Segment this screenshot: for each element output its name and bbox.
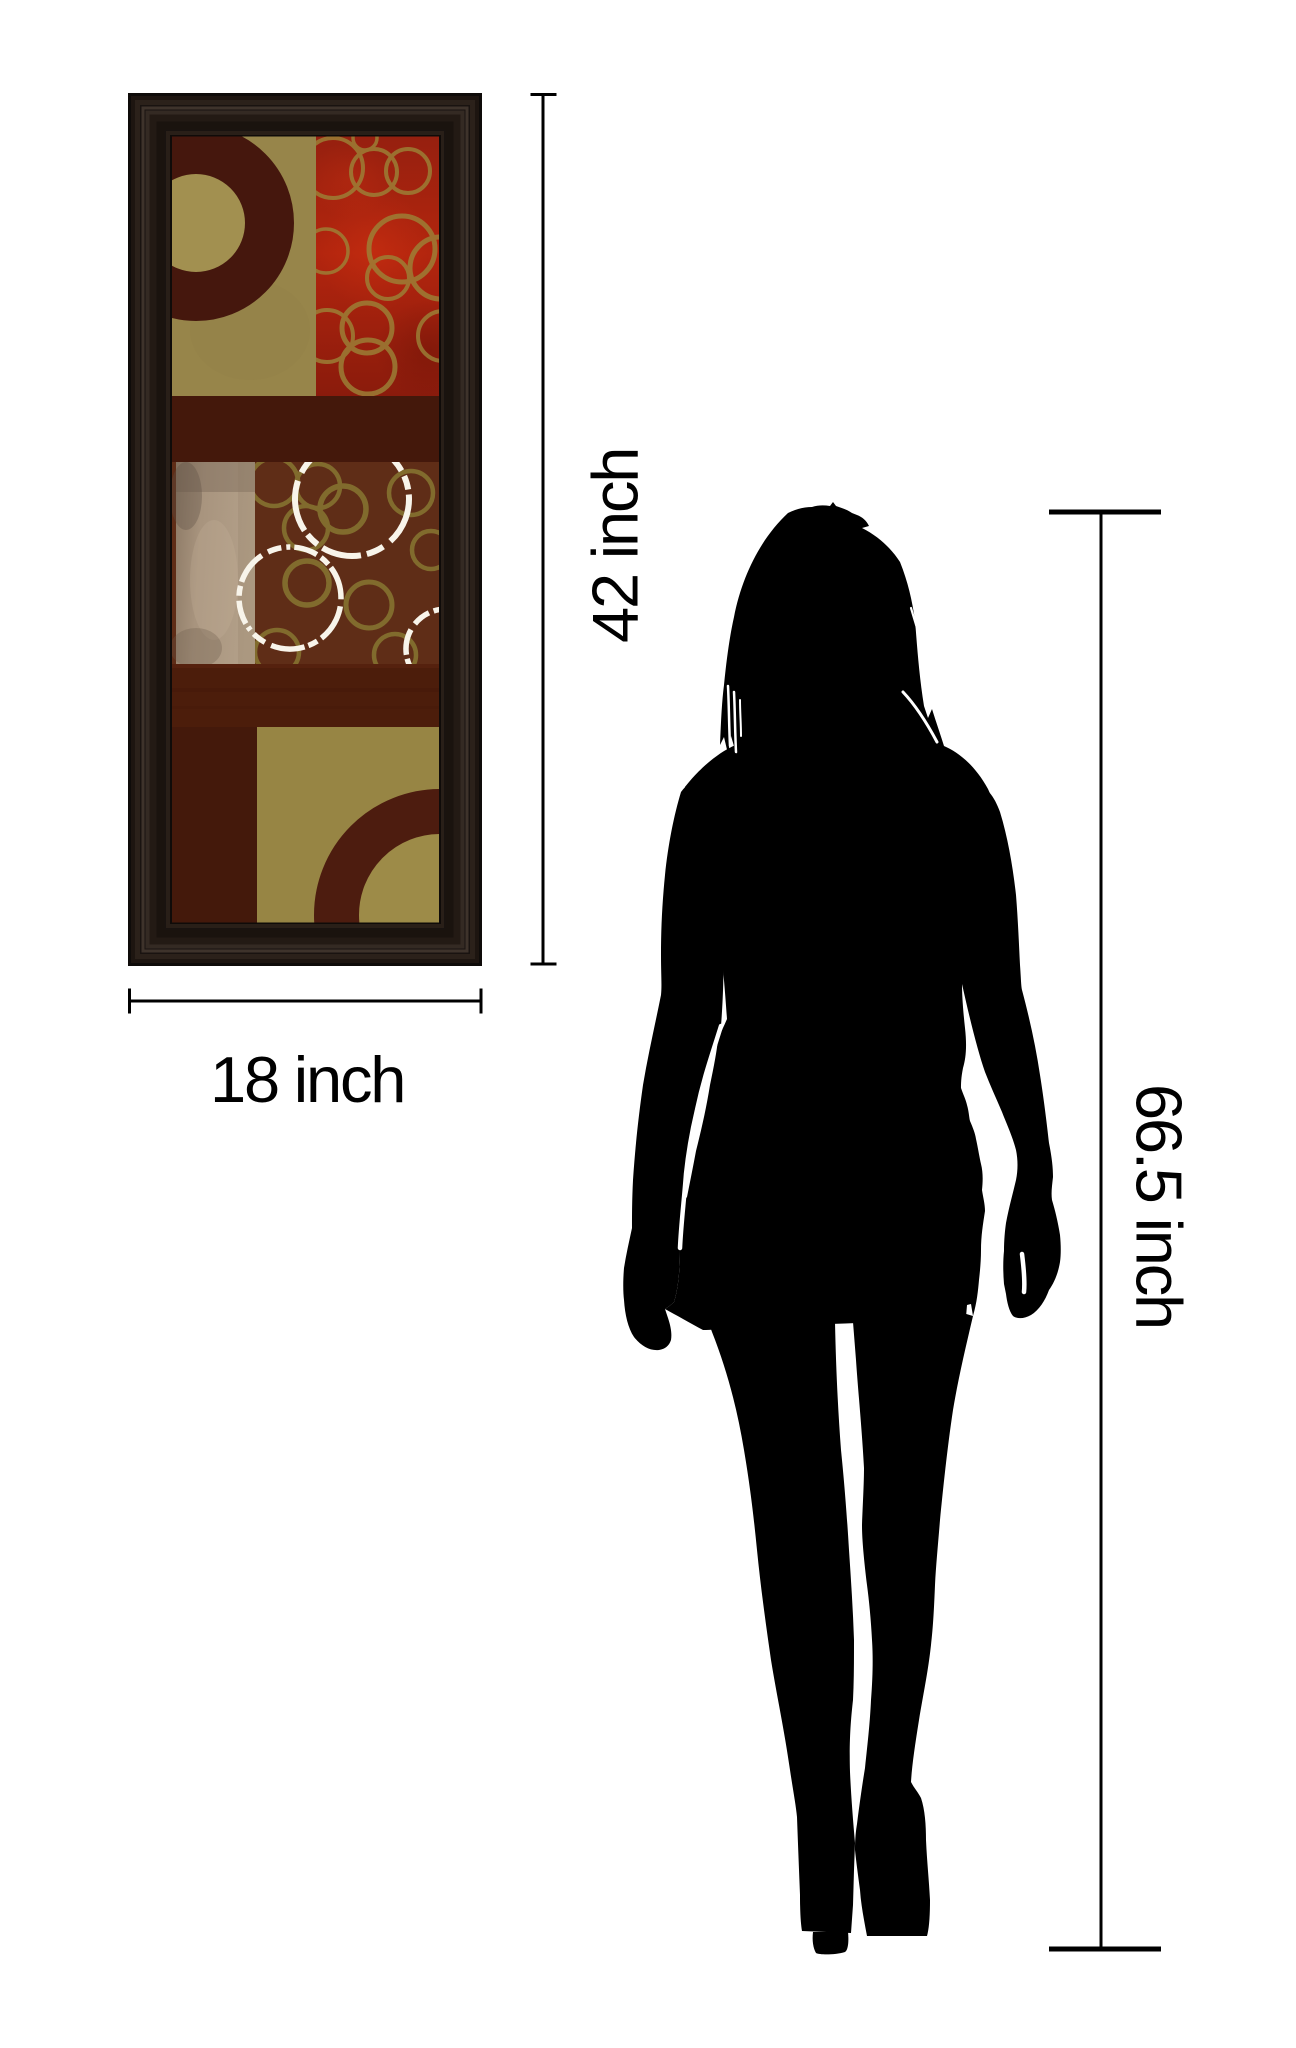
svg-text:18 inch: 18 inch [210, 1043, 404, 1116]
svg-text:66.5 inch: 66.5 inch [1123, 1084, 1196, 1328]
svg-text:42 inch: 42 inch [579, 449, 652, 643]
